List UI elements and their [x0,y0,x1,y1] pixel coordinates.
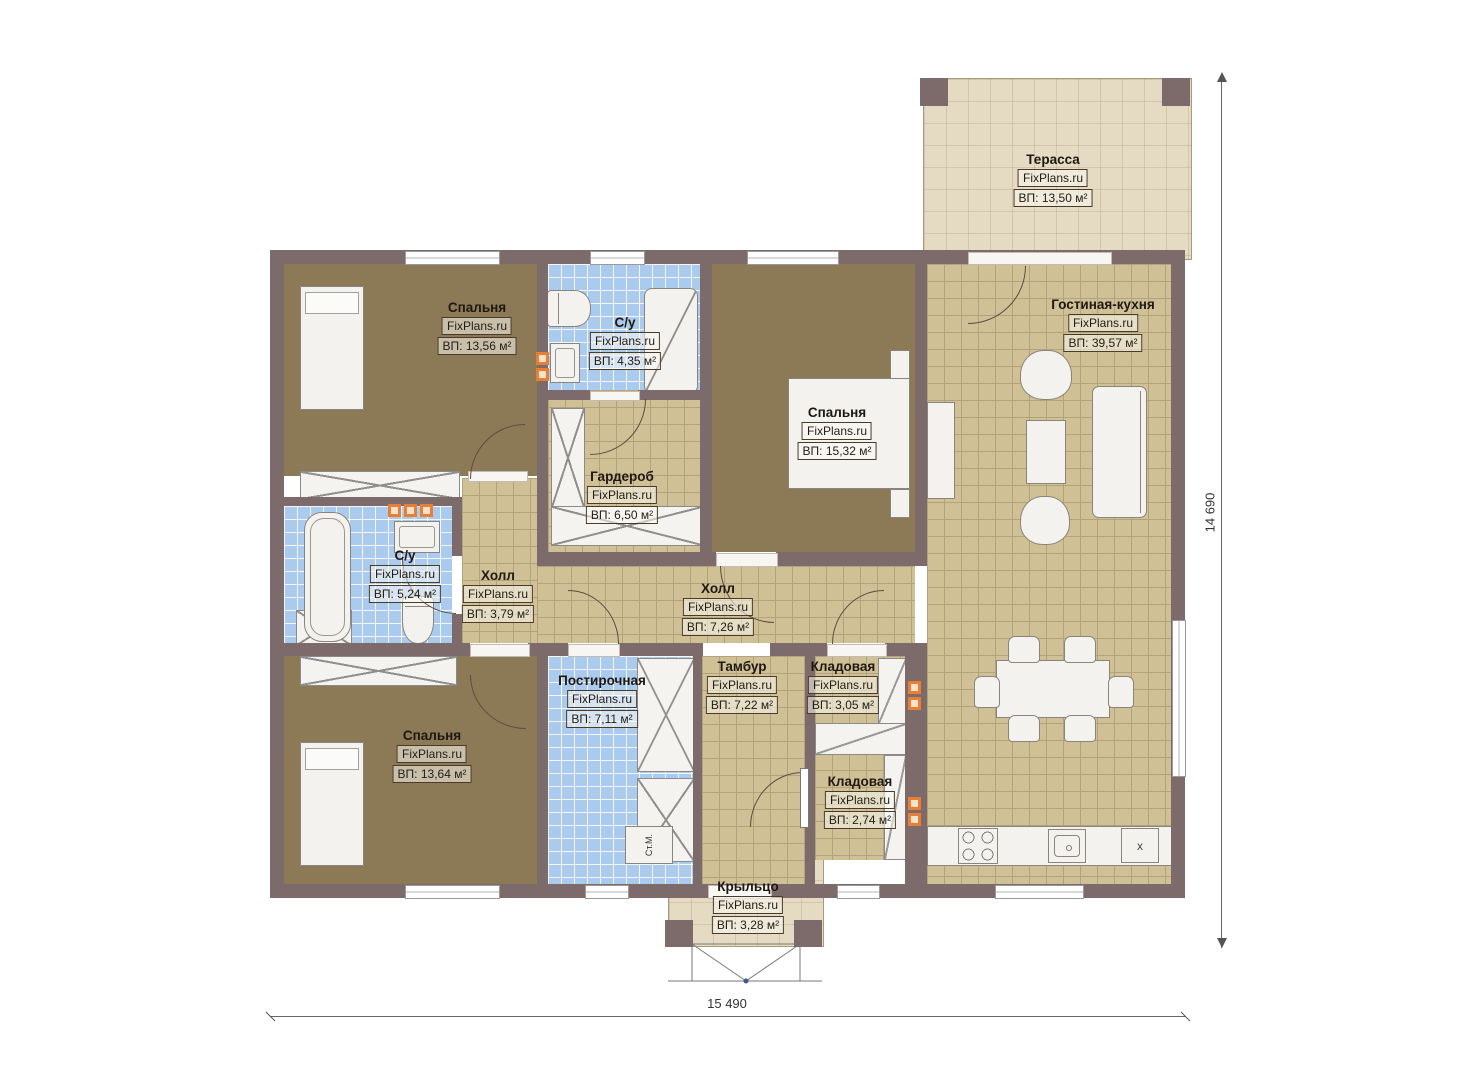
closet [300,471,460,500]
room-area: ВП: 39,57 м² [1064,334,1143,352]
bathtub [304,512,351,642]
closet [300,656,457,686]
label-hall-2: Холл FixPlans.ru ВП: 7,26 м² [682,581,754,636]
dimension-arrow [1217,938,1227,948]
room-name: Тамбур [718,659,767,674]
brand-watermark: FixPlans.ru [802,422,872,440]
dimension-width-label: 15 490 [707,996,747,1011]
brand-watermark: FixPlans.ru [442,317,512,335]
vent-marker [536,352,549,365]
wall [537,552,716,566]
window [1172,620,1186,777]
room-name: Холл [701,581,735,596]
label-vestibule: Тамбур FixPlans.ru ВП: 7,22 м² [706,659,778,714]
room-area: ВП: 3,79 м² [462,605,534,623]
wall [284,643,470,656]
stove [958,828,998,864]
label-bathroom-1: С/у FixPlans.ru ВП: 4,35 м² [589,315,661,370]
vent-marker [908,697,921,710]
door-sill [568,644,620,657]
label-bedroom-2: Спальня FixPlans.ru ВП: 15,32 м² [798,405,877,460]
room-name: С/у [394,548,415,563]
fridge: x [1121,828,1159,863]
sofa [1092,386,1147,518]
brand-watermark: FixPlans.ru [397,745,467,763]
wall [700,264,712,552]
brand-watermark: FixPlans.ru [590,332,660,350]
nightstand [890,350,910,379]
label-storage-1: Кладовая FixPlans.ru ВП: 3,05 м² [807,659,879,714]
wall [528,643,568,656]
room-area: ВП: 15,32 м² [798,442,877,460]
vent-marker [908,813,921,826]
brand-watermark: FixPlans.ru [707,676,777,694]
room-name: Спальня [403,728,461,743]
brand-watermark: FixPlans.ru [1018,169,1088,187]
brand-watermark: FixPlans.ru [463,585,533,603]
bed [300,742,364,866]
window [585,885,629,899]
room-area: ВП: 5,24 м² [369,585,441,603]
wall [452,614,462,645]
label-hall-1: Холл FixPlans.ru ВП: 3,79 м² [462,568,534,623]
dining-chair [1064,636,1096,663]
room-name: Терасса [1026,152,1080,167]
vent-marker [908,797,921,810]
vent-marker [908,681,921,694]
wall [915,264,927,566]
window [837,885,880,899]
room-name: Кладовая [811,659,876,674]
label-bedroom-1: Спальня FixPlans.ru ВП: 13,56 м² [438,300,517,355]
vent-marker [404,504,417,517]
room-area: ВП: 4,35 м² [589,352,661,370]
room-name: Кладовая [828,774,893,789]
vent-marker [536,368,549,381]
room-area: ВП: 3,05 м² [807,696,879,714]
room-area: ВП: 7,22 м² [706,696,778,714]
window [747,251,839,265]
room-name: Спальня [808,405,866,420]
dining-chair [1008,715,1040,742]
room-area: ВП: 6,50 м² [586,506,658,524]
room-area: ВП: 13,56 м² [438,337,517,355]
wall [638,390,700,400]
room-area: ВП: 13,50 м² [1014,189,1093,207]
dining-table [996,660,1110,718]
wall [284,497,462,506]
window [405,885,500,899]
label-porch: Крыльцо FixPlans.ru ВП: 3,28 м² [712,879,784,934]
wall [905,643,927,884]
wall [537,656,548,884]
room-name: С/у [614,315,635,330]
nightstand [890,489,910,518]
porch-pillar [794,920,822,947]
wall [1171,250,1185,898]
label-bathroom-2: С/у FixPlans.ru ВП: 5,24 м² [369,548,441,603]
room-name: Гардероб [590,469,654,484]
kitchen-sink [1048,829,1086,863]
dimension-line-horizontal [270,1016,1185,1017]
label-bedroom-3: Спальня FixPlans.ru ВП: 13,64 м² [393,728,472,783]
room-area: ВП: 7,26 м² [682,618,754,636]
label-wardrobe: Гардероб FixPlans.ru ВП: 6,50 м² [586,469,658,524]
brand-watermark: FixPlans.ru [683,598,753,616]
wall [270,250,284,898]
wall [770,643,827,656]
label-living-kitchen: Гостиная-кухня FixPlans.ru ВП: 39,57 м² [1051,297,1154,352]
dimension-line-vertical [1221,75,1222,948]
shelf [878,658,907,724]
label-terrace: Терасса FixPlans.ru ВП: 13,50 м² [1014,152,1093,207]
wall [618,643,703,656]
wall [693,656,702,884]
brand-watermark: FixPlans.ru [713,896,783,914]
brand-watermark: FixPlans.ru [587,486,657,504]
closet [551,408,585,508]
room-area: ВП: 3,28 м² [712,916,784,934]
door-leaf [800,768,809,828]
wall [776,552,915,566]
window [590,251,645,265]
terrace-door-opening [968,252,1112,265]
bed [300,286,364,410]
fridge-mark: x [1137,839,1143,853]
room-name: Постирочная [558,673,646,688]
terrace-pillar [920,78,948,106]
room-area: ВП: 7,11 м² [566,710,637,728]
brand-watermark: FixPlans.ru [370,565,440,583]
label-laundry: Постирочная FixPlans.ru ВП: 7,11 м² [558,673,646,728]
wall [452,506,462,556]
dining-chair [1108,676,1134,708]
tv-stand [927,402,955,499]
vent-marker [388,504,401,517]
wall [537,264,548,552]
dining-chair [1064,715,1096,742]
washbasin [550,343,580,383]
brand-watermark: FixPlans.ru [808,676,878,694]
toilet [547,290,591,327]
vent-marker [420,504,433,517]
dimension-arrow [1217,72,1227,82]
window [995,885,1084,899]
room-name: Крыльцо [717,879,778,894]
brand-watermark: FixPlans.ru [567,690,637,708]
label-storage-2: Кладовая FixPlans.ru ВП: 2,74 м² [824,774,896,829]
room-area: ВП: 13,64 м² [393,765,472,783]
coffee-table [1026,420,1066,484]
room-name: Гостиная-кухня [1051,297,1154,312]
brand-watermark: FixPlans.ru [825,791,895,809]
armchair [1020,496,1070,545]
room-name: Холл [481,568,515,583]
door-sill [470,644,530,657]
dimension-height-label: 14 690 [1202,493,1217,533]
door-sill [827,644,887,657]
washing-machine: Ст.М. [625,826,673,864]
terrace-pillar [1162,78,1190,106]
window [405,251,500,265]
room-area: ВП: 2,74 м² [824,811,896,829]
shelf [815,723,907,755]
armchair [1020,350,1072,400]
brand-watermark: FixPlans.ru [1068,314,1138,332]
dining-chair [974,676,1000,708]
dining-chair [1008,636,1040,663]
porch-pillar [665,920,693,947]
washing-machine-label: Ст.М. [644,834,654,856]
floor-plan-canvas: x Ст.М. [0,0,1474,1080]
door-sill [716,553,778,567]
wall [548,390,590,400]
room-name: Спальня [448,300,506,315]
